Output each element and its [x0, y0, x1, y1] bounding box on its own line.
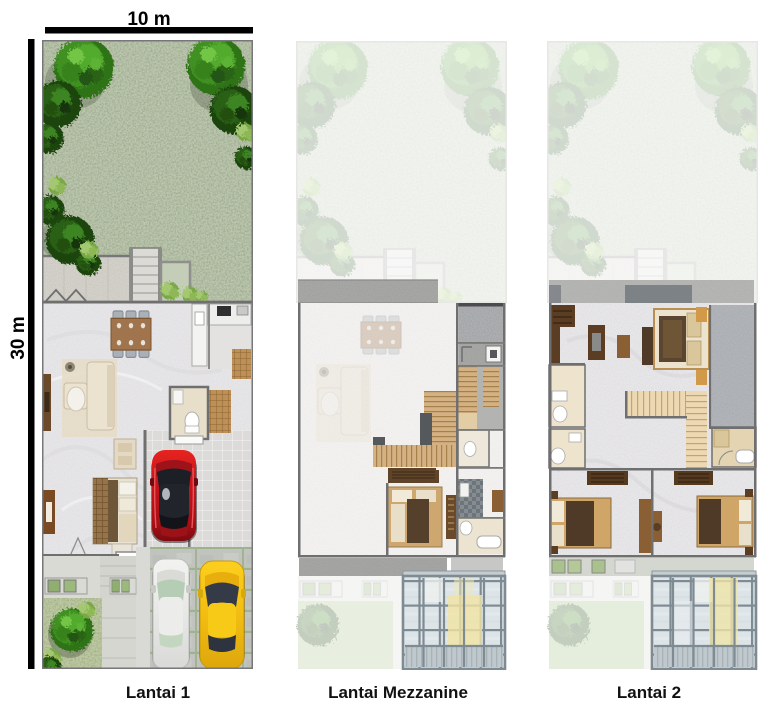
- svg-text:30 m: 30 m: [8, 316, 29, 359]
- svg-text:10 m: 10 m: [127, 9, 170, 30]
- svg-text:Lantai 1: Lantai 1: [126, 683, 190, 702]
- svg-text:Lantai 2: Lantai 2: [617, 683, 681, 702]
- svg-text:Lantai Mezzanine: Lantai Mezzanine: [328, 683, 468, 702]
